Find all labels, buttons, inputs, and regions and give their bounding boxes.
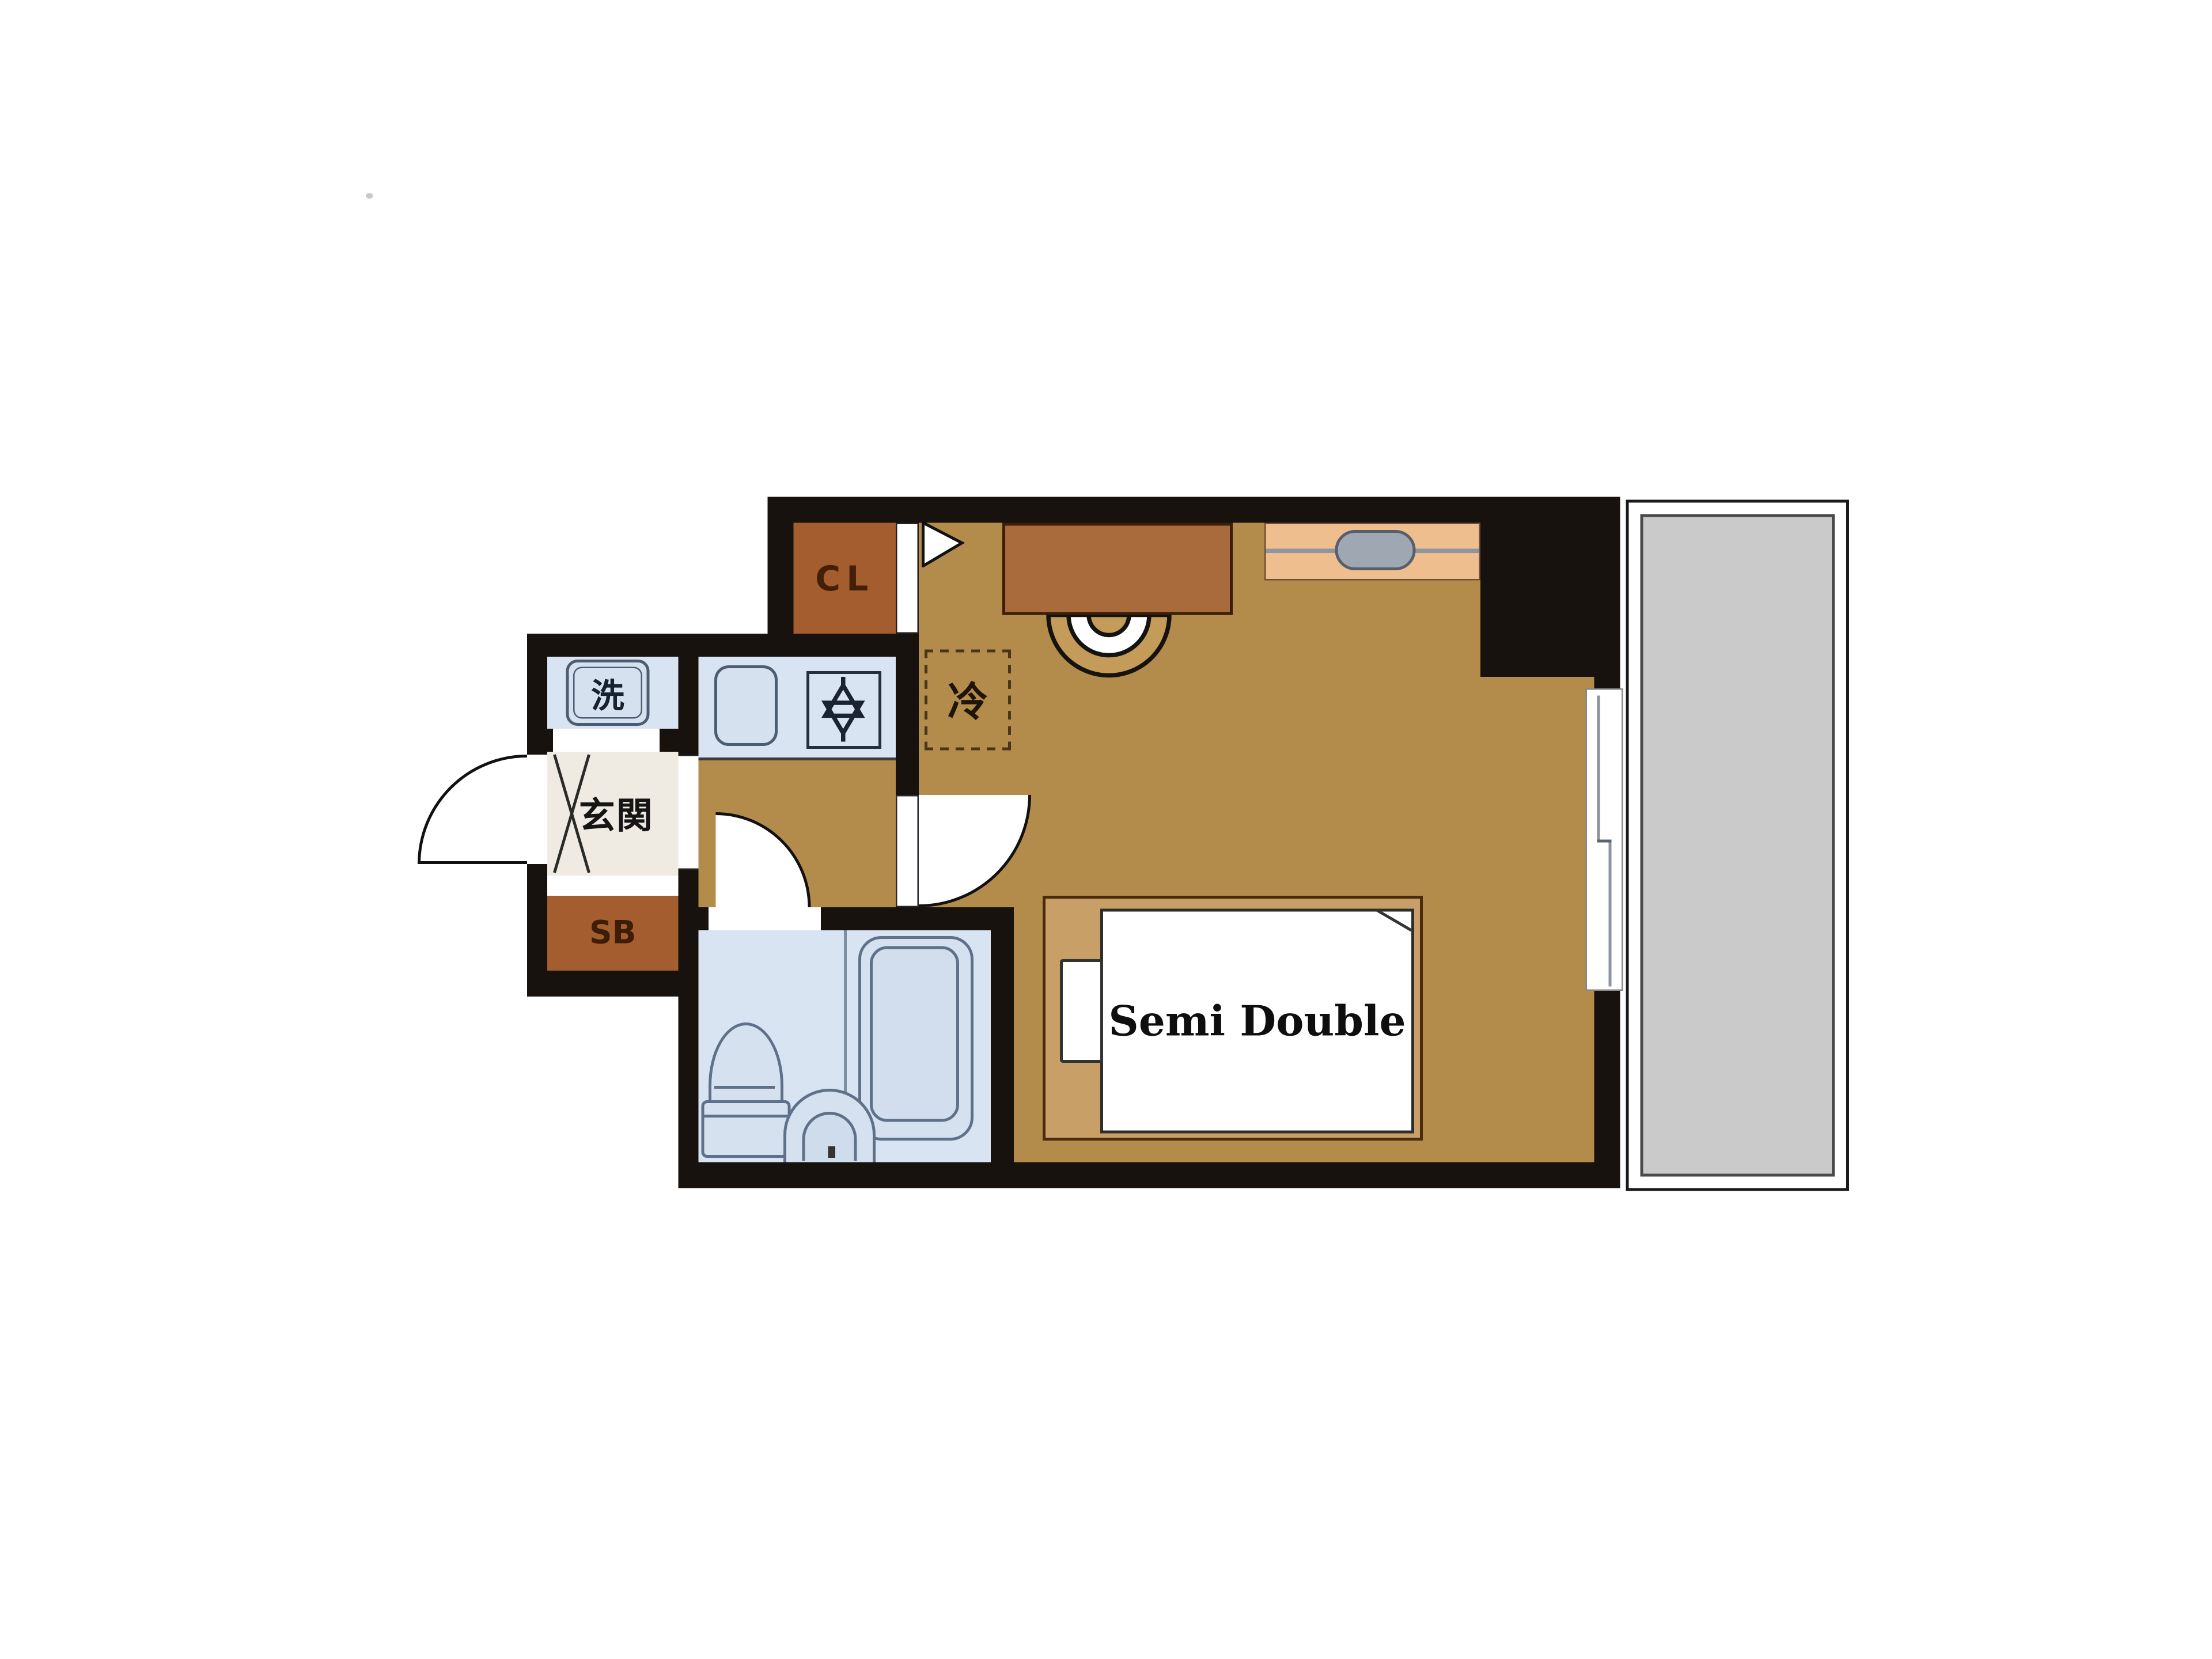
- window-counter-handle: [1335, 530, 1416, 570]
- opening-entrance-to-hall: [679, 755, 699, 870]
- refrigerator-space: 冷: [925, 650, 1011, 751]
- bed-pillow: [1060, 959, 1103, 1063]
- closet-door-triangle: [922, 521, 965, 567]
- balcony-sliding-window: [1586, 688, 1623, 991]
- floorplan-canvas: 玄関 洗 SB CL 冷 Semi Double: [0, 0, 2212, 1659]
- counter-cabinet: [1002, 523, 1233, 615]
- opening-bathroom-door: [709, 907, 821, 930]
- opening-entrance-door: [527, 755, 547, 864]
- wall-band-under-closet: [527, 634, 919, 657]
- gas-stove: [806, 671, 881, 749]
- stove-burner-icon: [809, 674, 877, 745]
- closet-door-strip: [896, 523, 919, 634]
- window-pane-line-1: [1597, 696, 1600, 840]
- window-counter: [1264, 523, 1480, 581]
- entrance-label: 玄関: [559, 792, 674, 835]
- wall-upper-left: [768, 523, 794, 634]
- window-pane-line-2: [1609, 843, 1612, 987]
- wall-kitchen-right: [896, 657, 919, 795]
- entrance-shoebox-gap: [547, 876, 679, 896]
- washing-machine: 洗: [566, 660, 650, 726]
- opening-hall-to-room: [896, 795, 919, 907]
- wall-right-lower: [1594, 991, 1620, 1162]
- wall-bottom: [679, 1162, 1620, 1188]
- entrance-door-arc: [418, 755, 527, 864]
- opening-washroom-to-entrance: [553, 729, 660, 752]
- bath-hand-sink-drain: [828, 1146, 836, 1158]
- kitchen-sink: [714, 665, 778, 746]
- bed-mattress: Semi Double: [1100, 909, 1414, 1134]
- balcony-deck: [1641, 514, 1835, 1177]
- counter-fan-arcs: [1046, 615, 1172, 681]
- bed-label: Semi Double: [1108, 997, 1406, 1046]
- wall-top-right-block: [1480, 497, 1620, 677]
- wall-annex-bottom: [527, 971, 699, 997]
- window-pane-latch: [1597, 840, 1612, 843]
- balcony: [1626, 500, 1850, 1191]
- print-speck: [366, 193, 373, 199]
- bathtub: [858, 936, 974, 1141]
- closet: CL: [794, 523, 896, 634]
- wall-bathroom-right: [991, 907, 1014, 1162]
- refrigerator-label: 冷: [927, 653, 1008, 748]
- bathtub-inner: [870, 946, 959, 1122]
- toilet-tank: [702, 1100, 791, 1158]
- washing-machine-label: 洗: [569, 662, 647, 723]
- shoe-box: SB: [547, 896, 679, 971]
- bed-sheet-fold: [1374, 907, 1414, 933]
- wall-right-upper-stub: [1594, 677, 1620, 688]
